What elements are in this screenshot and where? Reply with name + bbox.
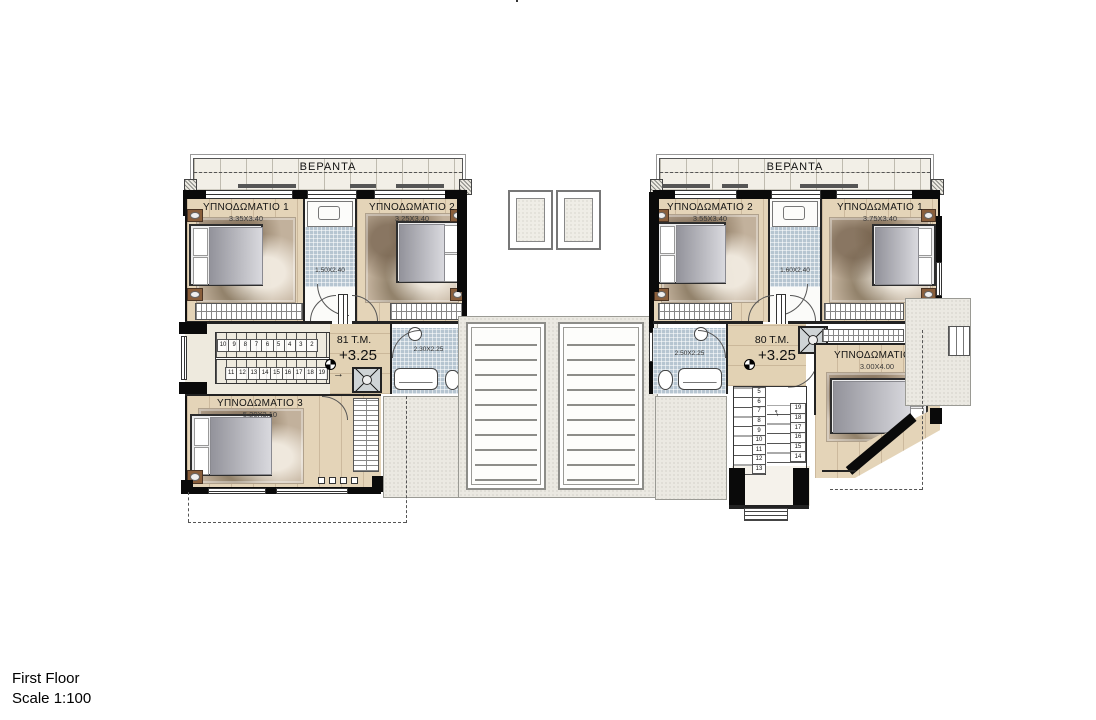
outline-dashed xyxy=(922,330,923,490)
toilet xyxy=(658,370,673,390)
bathtub xyxy=(678,368,722,390)
wall-segment xyxy=(822,470,856,472)
room-dims: 3.25X3.40 xyxy=(360,214,464,223)
wardrobe xyxy=(658,303,732,320)
wall-corner xyxy=(179,382,207,394)
stair-numbers-col1: 5678910111213 xyxy=(752,388,766,474)
skylight-panel xyxy=(556,190,601,250)
pergola-louvers xyxy=(558,322,644,490)
sliding-door-rail xyxy=(396,184,444,188)
room-label: ΥΠΝΟΔΩΜΑΤΙΟ 2 xyxy=(658,202,762,213)
wall-segment xyxy=(649,192,659,292)
stair-step-number: 19 xyxy=(316,367,328,380)
bath-sink xyxy=(783,206,805,220)
pergola-louvers xyxy=(466,322,546,490)
level-marker-icon xyxy=(325,359,336,370)
terrace xyxy=(655,396,727,500)
bath-sink xyxy=(318,206,340,220)
outline-dashed xyxy=(406,396,407,523)
bed xyxy=(190,414,272,476)
window xyxy=(307,190,357,199)
veranda-label: ΒΕΡΑΝΤΑ xyxy=(659,161,931,173)
room-dims: 3.35X3.40 xyxy=(194,214,298,223)
wall-corner xyxy=(181,480,193,494)
door-jamb xyxy=(338,294,348,327)
sliding-door-rail xyxy=(800,184,858,188)
sliding-door-rail xyxy=(350,184,376,188)
window xyxy=(276,488,348,494)
window xyxy=(197,190,293,199)
skylight-panel xyxy=(508,190,553,250)
outline-dashed xyxy=(188,522,406,523)
stair-numbers-col2: 191817161514 xyxy=(790,404,806,462)
wall-segment xyxy=(814,345,816,415)
railing-posts xyxy=(318,477,358,484)
sliding-door-rail xyxy=(238,184,296,188)
stair-step-number: 13 xyxy=(752,464,766,475)
entry-steps xyxy=(744,508,788,521)
wall-segment xyxy=(457,192,467,292)
stair-step-number: 2 xyxy=(306,339,318,352)
bath-floor xyxy=(770,227,820,287)
outline-dashed xyxy=(188,492,189,522)
room-dims: 3.75X3.40 xyxy=(828,214,932,223)
sliding-door-rail xyxy=(722,184,748,188)
level-marker-icon xyxy=(744,359,755,370)
stair-direction-arrow: → xyxy=(333,368,344,380)
drawing-title: First Floor xyxy=(12,670,80,687)
room-label: ΥΠΝΟΔΩΜΑΤΙΟ 1 xyxy=(828,202,932,213)
window xyxy=(771,190,821,199)
wardrobe xyxy=(824,303,904,320)
bed xyxy=(396,221,462,283)
shower-tray xyxy=(352,367,382,393)
sliding-door-rail xyxy=(662,184,710,188)
bed xyxy=(189,224,263,286)
window xyxy=(516,0,518,2)
unit-area-label: 80 T.M. xyxy=(742,334,802,346)
room-label: ΥΠΝΟΔΩΜΑΤΙΟ 1 xyxy=(194,202,298,213)
door-jamb xyxy=(776,294,786,327)
wardrobe xyxy=(822,329,904,342)
bath-floor xyxy=(305,227,355,287)
wardrobe xyxy=(195,303,303,320)
drawing-scale: Scale 1:100 xyxy=(12,690,91,707)
wall-segment xyxy=(936,216,942,262)
veranda-label: ΒΕΡΑΝΤΑ xyxy=(193,161,463,173)
window xyxy=(936,262,942,296)
window xyxy=(181,336,187,380)
wall-segment xyxy=(649,292,654,332)
nightstand xyxy=(187,288,203,301)
bed xyxy=(656,222,726,284)
wardrobe xyxy=(353,398,379,472)
stair-numbers-lower: 111213141516171819 xyxy=(226,367,328,378)
terrace xyxy=(383,396,467,498)
room-dims: 5.20X3.10 xyxy=(208,410,312,419)
room-dims: 3.55X3.40 xyxy=(658,214,762,223)
wall-corner xyxy=(930,408,942,424)
window xyxy=(374,190,448,199)
bathtub xyxy=(394,368,438,390)
bed xyxy=(872,224,936,286)
wardrobe xyxy=(390,303,466,320)
wall-corner xyxy=(179,322,207,334)
bath-dims: 1.60X2.40 xyxy=(770,267,820,274)
unit-level-label: +3.25 xyxy=(339,347,377,364)
stair-numbers-upper: 1098765432 xyxy=(218,339,318,350)
unit-area-label: 81 T.M. xyxy=(324,334,384,346)
wall-corner xyxy=(729,468,745,508)
column xyxy=(948,326,970,356)
wall-corner xyxy=(793,468,809,508)
stair-step-number: 14 xyxy=(790,451,806,462)
floor-plan-canvas: ΒΕΡΑΝΤΑ ΥΠΝΟΔΩΜΑΤΙΟ 1 3.35X3.40 1. xyxy=(0,0,1096,720)
window xyxy=(208,488,266,494)
staircase: 1098765432 111213141516171819 xyxy=(215,332,330,384)
room-label: ΥΠΝΟΔΩΜΑΤΙΟ 3 xyxy=(208,398,312,409)
bath-dims: 1.50X2.40 xyxy=(305,267,355,274)
room-label: ΥΠΝΟΔΩΜΑΤΙΟ 2 xyxy=(360,202,464,213)
outline-dashed xyxy=(830,489,922,490)
